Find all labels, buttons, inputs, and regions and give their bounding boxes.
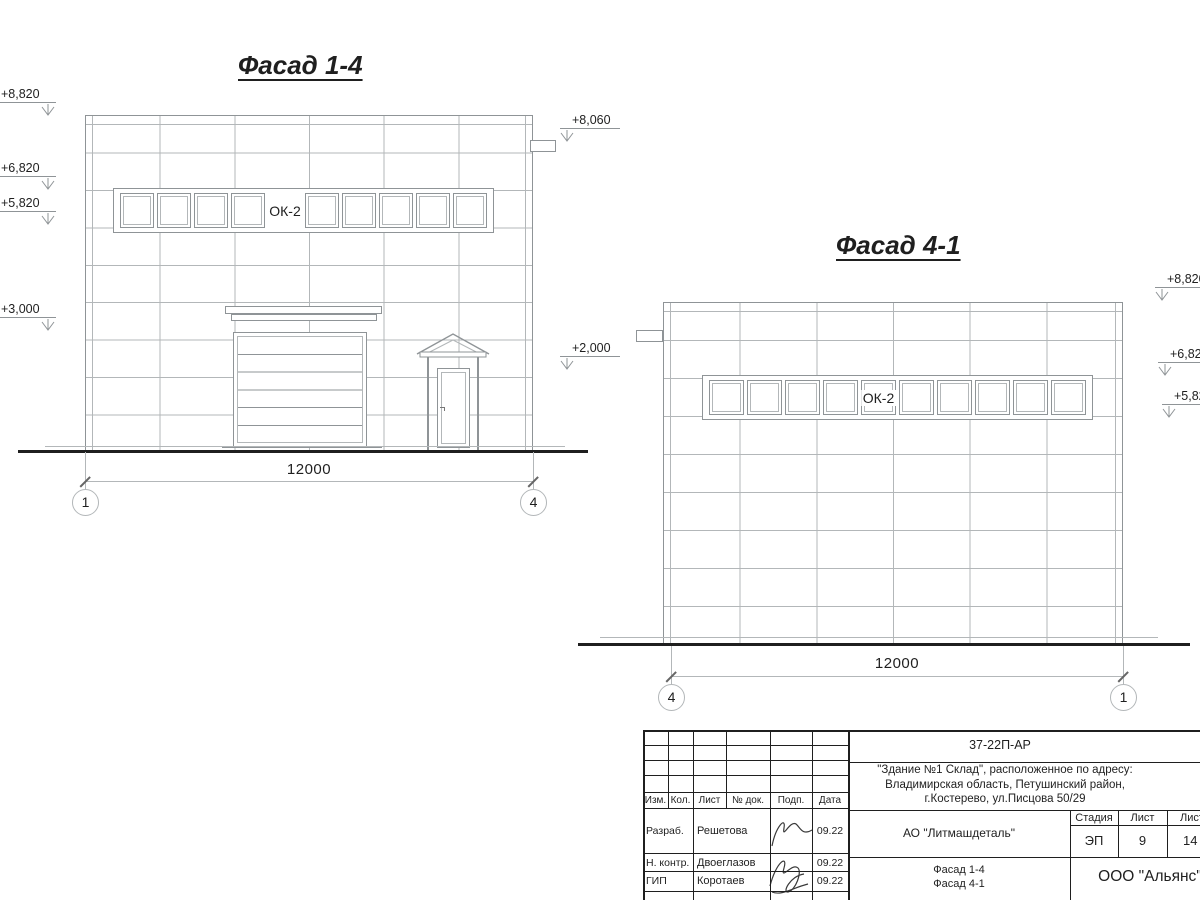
facade-1-4-title: Фасад 1-4 [238,50,363,81]
window-cell [379,193,413,228]
tb-name: Коротаев [697,874,769,889]
corner-trim-line [92,116,93,451]
tb-role: Н. контр. [646,856,698,871]
titleblock-line [643,871,848,872]
door-handle [440,407,445,411]
titleblock-line [848,810,1200,811]
tb-col-izm: Изм. [643,793,668,808]
tb-content: Фасад 1-4 Фасад 4-1 [848,863,1070,891]
window-cell [785,380,820,415]
tb-content-line: Фасад 1-4 [848,863,1070,877]
gate-canopy-bottom [231,314,377,321]
window-glass [123,196,151,225]
ground-line [18,450,588,453]
axis-bubble-1: 1 [1110,684,1137,711]
tb-col-data: Дата [812,793,848,808]
window-cell [416,193,450,228]
window-cell [194,193,228,228]
tb-address-line: "Здание №1 Склад", расположенное по адре… [848,763,1162,778]
window-cell [120,193,154,228]
window-cell [975,380,1010,415]
tb-stage-label: Стадия [1070,811,1118,826]
elevation-mark: +5,820 [0,196,56,230]
tb-sheets-label: Листов [1180,811,1200,826]
window-cell [747,380,782,415]
window-band-cells: ОК-2 [703,376,1092,419]
titleblock-line [643,775,848,776]
window-glass [160,196,188,225]
porch-post [477,357,479,450]
window-cell [823,380,858,415]
extension-line [533,452,534,490]
tb-role: ГИП [646,874,694,889]
window-glass [788,383,817,412]
titleblock-line [812,730,813,900]
elevation-mark: +6,820 [1158,347,1200,381]
window-cell [899,380,934,415]
elevation-mark: +8,820 [0,87,56,121]
titleblock-line [848,762,1200,763]
titleblock-line [643,745,848,746]
elevation-arrow-icon [1158,363,1172,378]
titleblock-line [668,730,669,808]
elevation-arrow-icon [1162,405,1176,420]
dimension-text: 12000 [85,461,533,478]
window-glass [940,383,969,412]
elevation-mark: +8,820 [1155,272,1200,306]
parapet-line [664,311,1122,312]
window-cell [1051,380,1086,415]
window-glass [750,383,779,412]
titleblock-line [848,857,1200,858]
tb-object-address: "Здание №1 Склад", расположенное по адре… [848,763,1162,807]
parapet-line [86,124,532,125]
axis-bubble-4: 4 [658,684,685,711]
window-glass [826,383,855,412]
gutter-outlet [636,330,663,342]
window-cell [937,380,972,415]
tb-organization: ООО "Альянс" [1070,869,1200,884]
titleblock-line [1167,810,1168,857]
window-glass [234,196,262,225]
tb-col-kol: Кол. [668,793,693,808]
window-glass [456,196,484,225]
elevation-arrow-icon [41,318,55,333]
window-glass [308,196,336,225]
window-cell [709,380,744,415]
window-cell [342,193,376,228]
tb-customer: АО "Литмашдеталь" [848,826,1070,841]
elevation-arrow-icon [41,212,55,227]
window-glass [419,196,447,225]
titleblock-line [1118,810,1119,857]
elevation-label: +8,820 [1167,272,1200,286]
tb-col-podp: Подп. [770,793,812,808]
window-glass [1016,383,1045,412]
window-cell [157,193,191,228]
window-cell [305,193,339,228]
elevation-label: +8,060 [572,113,611,127]
elevation-arrow-icon [560,357,574,372]
titleblock-line [643,891,848,892]
tb-sheet-value: 9 [1118,833,1167,848]
window-cell: ОК-2 [268,193,302,228]
tb-col-dok: № док. [726,793,770,808]
window-cell [453,193,487,228]
tb-name: Решетова [697,824,769,839]
tb-content-line: Фасад 4-1 [848,877,1070,891]
porch-post [427,357,429,450]
elevation-arrow-icon [41,103,55,118]
porch-gable-roof [414,330,492,361]
tb-sheet-label: Лист [1118,811,1167,826]
window-band-ok2: ОК-2 [702,375,1093,420]
elevation-mark: +3,000 [0,302,56,336]
tb-address-line: г.Костерево, ул.Писцова 50/29 [848,792,1162,807]
corner-trim-line [1115,303,1116,643]
elevation-label: +6,820 [1,161,40,175]
titleblock-line [1070,810,1071,900]
elevation-label: +2,000 [572,341,611,355]
tb-doc-number: 37-22П-АР [848,738,1152,753]
tb-date: 09.22 [812,824,848,839]
window-glass [382,196,410,225]
window-glass [712,383,741,412]
window-band-ok2: ОК-2 [113,188,494,233]
axis-bubble-4: 4 [520,489,547,516]
elevation-mark: +5,820 [1162,389,1200,423]
titleblock-line [643,760,848,761]
window-glass [902,383,931,412]
elevation-label: +5,820 [1,196,40,210]
window-mark-label: ОК-2 [267,203,303,219]
titleblock-line [770,730,771,900]
dimension-line [671,676,1123,677]
plinth-line [600,637,1158,638]
elevation-arrow-icon [1155,288,1169,303]
tb-sheets-value: 14 [1183,833,1200,848]
elevation-label: +8,820 [1,87,40,101]
tb-role: Разраб. [646,824,694,839]
window-cell [231,193,265,228]
window-glass [978,383,1007,412]
titleblock-line [643,853,848,854]
corner-trim-line [525,116,526,451]
elevation-label: +3,000 [1,302,40,316]
elevation-label: +6,820 [1170,347,1200,361]
dimension-line [85,481,533,482]
facade-4-1-drawing [663,302,1123,644]
gate-panels [237,336,363,443]
elevation-mark: +6,820 [0,161,56,195]
elevation-mark: +2,000 [560,341,620,375]
window-cell: ОК-2 [861,380,896,415]
window-glass [1054,383,1083,412]
gate-threshold [222,447,382,448]
tb-name: Двоеглазов [697,856,769,871]
corner-trim-line [670,303,671,643]
titleblock-line [848,730,850,900]
window-glass [197,196,225,225]
titleblock-line [643,792,848,793]
titleblock-line [643,730,645,900]
extension-line [1123,646,1124,684]
elevation-label: +5,820 [1174,389,1200,403]
window-band-cells: ОК-2 [114,189,493,232]
tb-stage-value: ЭП [1070,833,1118,848]
window-glass [345,196,373,225]
tb-col-list: Лист [693,793,726,808]
window-mark-label: ОК-2 [861,390,897,406]
entry-door [437,368,470,448]
axis-bubble-1: 1 [72,489,99,516]
elevation-arrow-icon [41,177,55,192]
elevation-arrow-icon [560,129,574,144]
tb-address-line: Владимирская область, Петушинский район, [848,778,1162,793]
ground-line [578,643,1190,646]
titleblock-line [1070,825,1200,826]
titleblock-line [643,808,848,809]
sectional-gate [233,332,367,447]
gate-canopy-top [225,306,382,314]
gutter-outlet [530,140,556,152]
titleblock-line [693,730,694,900]
window-cell [1013,380,1048,415]
elevation-mark: +8,060 [560,113,620,147]
drawing-sheet: Фасад 1-4 ОК-2 12000 1 4 +8,820 [0,0,1200,900]
dimension-text: 12000 [671,655,1123,672]
facade-4-1-title: Фасад 4-1 [836,230,961,261]
titleblock-line [726,730,727,808]
